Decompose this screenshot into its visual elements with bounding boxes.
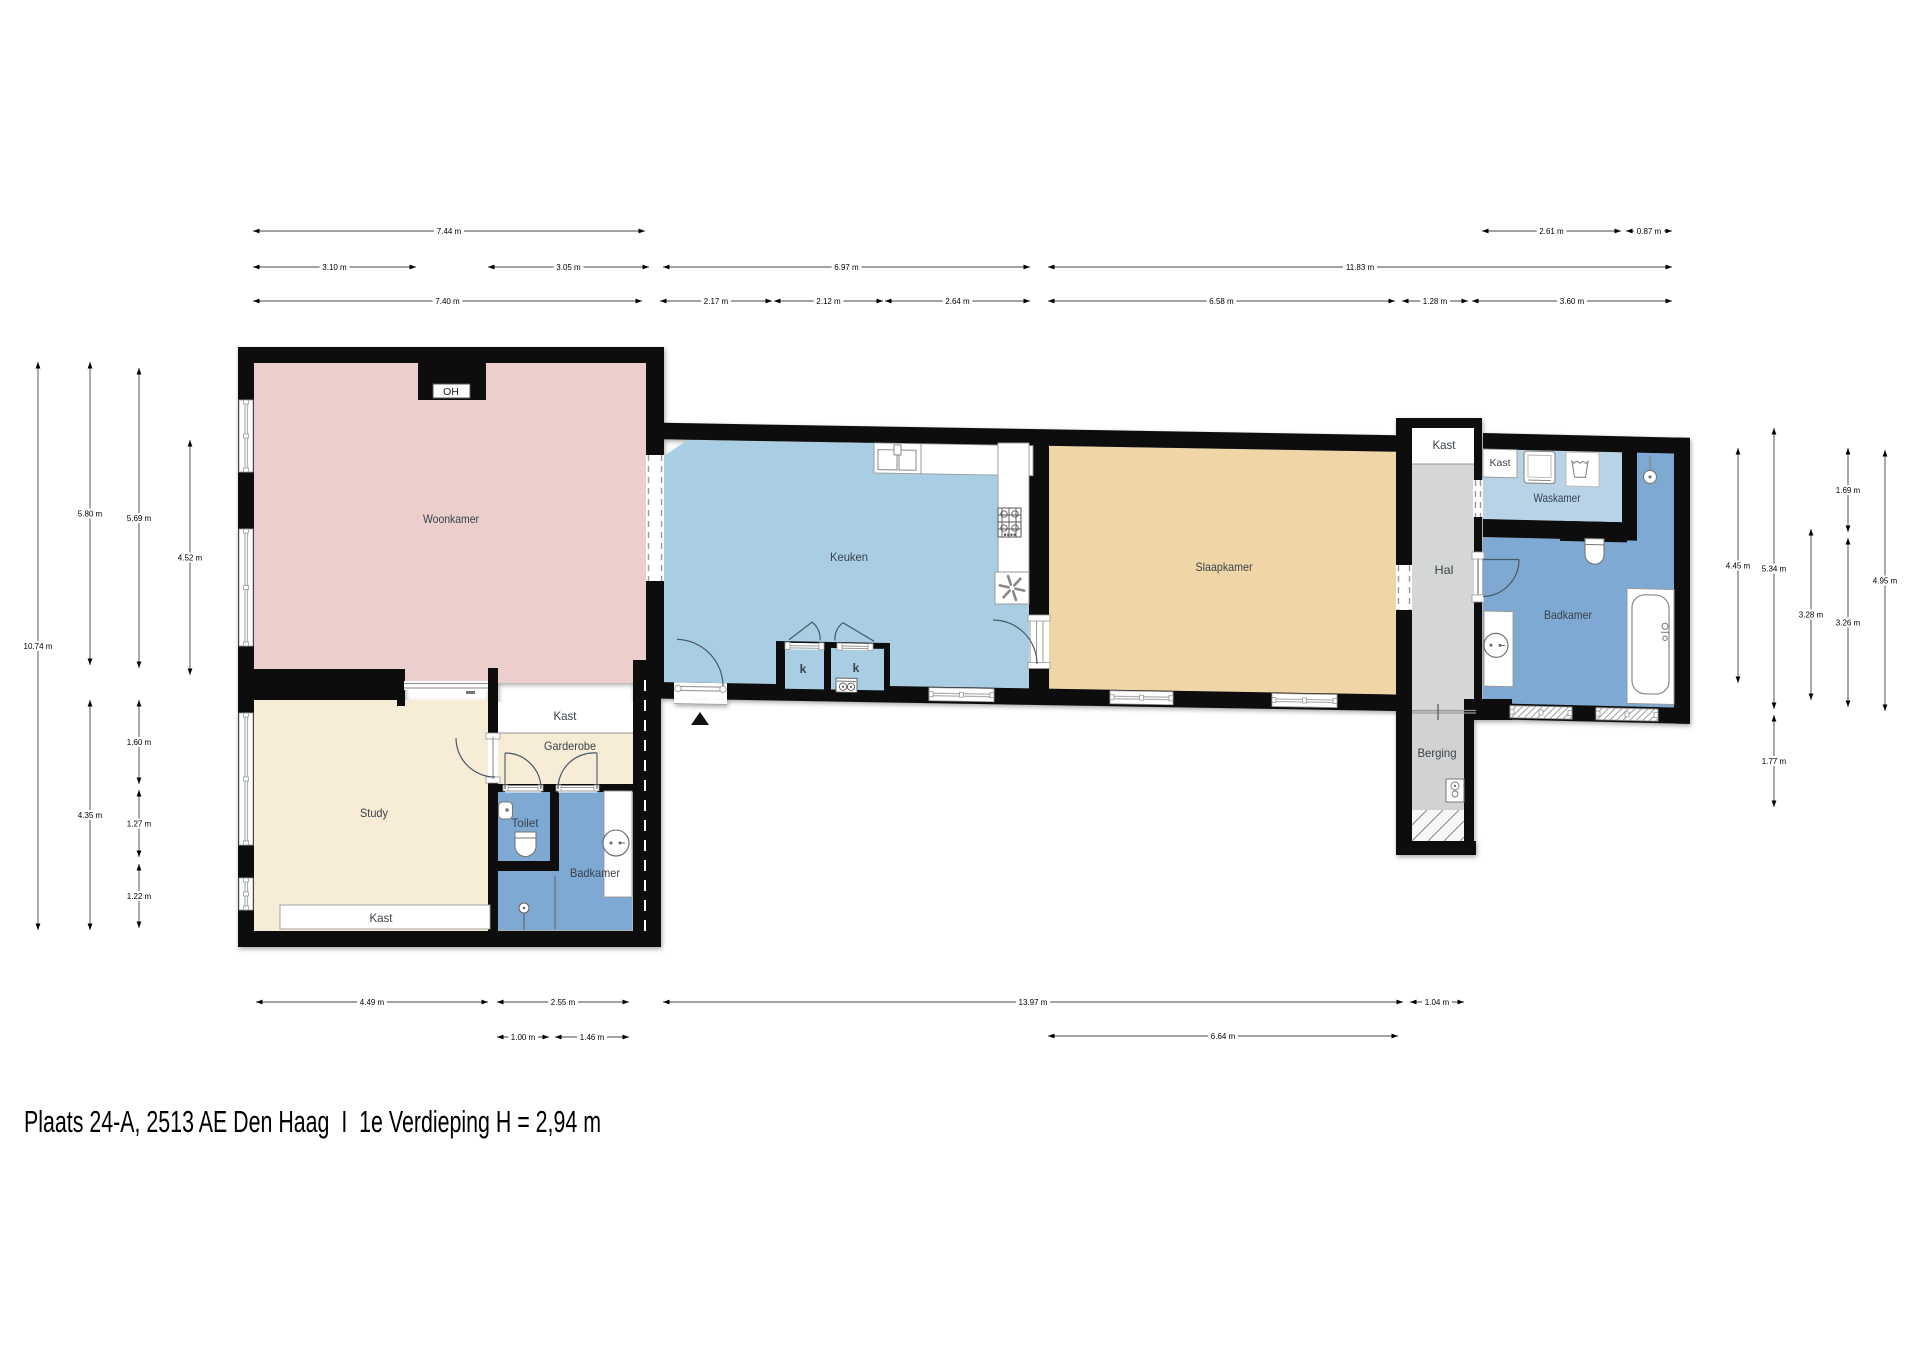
svg-text:2.64 m: 2.64 m: [945, 297, 970, 306]
svg-text:13.97 m: 13.97 m: [1019, 998, 1048, 1007]
svg-text:7.40 m: 7.40 m: [435, 297, 460, 306]
svg-text:10.74 m: 10.74 m: [24, 642, 53, 651]
svg-text:1.46 m: 1.46 m: [580, 1033, 605, 1042]
svg-text:Slaapkamer: Slaapkamer: [1196, 560, 1253, 574]
svg-text:Plaats 24-A, 2513 AE Den Haag: Plaats 24-A, 2513 AE Den Haag I 1e Verdi…: [24, 1104, 601, 1139]
svg-text:1.00 m: 1.00 m: [511, 1033, 536, 1042]
svg-text:3.28 m: 3.28 m: [1799, 610, 1824, 619]
svg-text:Toilet: Toilet: [512, 816, 540, 830]
svg-text:3.05 m: 3.05 m: [556, 263, 581, 272]
svg-text:Waskamer: Waskamer: [1534, 491, 1581, 505]
svg-text:2.17 m: 2.17 m: [704, 297, 729, 306]
svg-text:Study: Study: [360, 806, 388, 820]
svg-text:1.60 m: 1.60 m: [127, 738, 152, 747]
svg-text:2.55 m: 2.55 m: [551, 998, 576, 1007]
svg-text:k: k: [800, 662, 807, 676]
svg-text:3.26 m: 3.26 m: [1836, 618, 1861, 627]
svg-text:1.28 m: 1.28 m: [1423, 297, 1448, 306]
svg-text:5.80 m: 5.80 m: [78, 509, 103, 518]
svg-text:6.58 m: 6.58 m: [1209, 297, 1234, 306]
svg-text:1.69 m: 1.69 m: [1836, 486, 1861, 495]
svg-text:4.35 m: 4.35 m: [78, 811, 103, 820]
svg-text:3.60 m: 3.60 m: [1560, 297, 1585, 306]
svg-text:4.95 m: 4.95 m: [1873, 576, 1898, 585]
svg-text:1.22 m: 1.22 m: [127, 892, 152, 901]
svg-text:Kast: Kast: [370, 911, 394, 925]
svg-text:2.61 m: 2.61 m: [1539, 227, 1564, 236]
svg-text:OH: OH: [443, 386, 459, 398]
svg-text:7.44 m: 7.44 m: [437, 227, 462, 236]
svg-text:Keuken: Keuken: [830, 550, 868, 564]
svg-text:1.04 m: 1.04 m: [1425, 998, 1450, 1007]
svg-text:4.52 m: 4.52 m: [178, 553, 203, 562]
svg-text:4.49 m: 4.49 m: [360, 998, 385, 1007]
svg-text:1.77 m: 1.77 m: [1762, 757, 1787, 766]
svg-text:4.45 m: 4.45 m: [1726, 561, 1751, 570]
svg-text:6.97 m: 6.97 m: [834, 263, 859, 272]
svg-text:Badkamer: Badkamer: [570, 866, 620, 880]
svg-text:Garderobe: Garderobe: [544, 739, 596, 753]
svg-text:k: k: [853, 661, 860, 675]
svg-text:1.27 m: 1.27 m: [127, 819, 152, 828]
svg-text:Woonkamer: Woonkamer: [423, 512, 479, 526]
svg-text:11.83 m: 11.83 m: [1346, 263, 1375, 272]
svg-text:Kast: Kast: [1490, 457, 1511, 469]
svg-text:5.34 m: 5.34 m: [1762, 564, 1787, 573]
svg-text:Badkamer: Badkamer: [1544, 608, 1592, 622]
svg-text:Kast: Kast: [1433, 438, 1457, 452]
svg-text:2.12 m: 2.12 m: [816, 297, 841, 306]
svg-text:Berging: Berging: [1418, 746, 1457, 760]
svg-text:5.69 m: 5.69 m: [127, 514, 152, 523]
svg-text:0.87 m: 0.87 m: [1637, 227, 1662, 236]
svg-text:3.10 m: 3.10 m: [322, 263, 347, 272]
svg-text:6.64 m: 6.64 m: [1211, 1032, 1236, 1041]
svg-text:Hal: Hal: [1435, 563, 1454, 577]
svg-text:Kast: Kast: [554, 709, 578, 723]
